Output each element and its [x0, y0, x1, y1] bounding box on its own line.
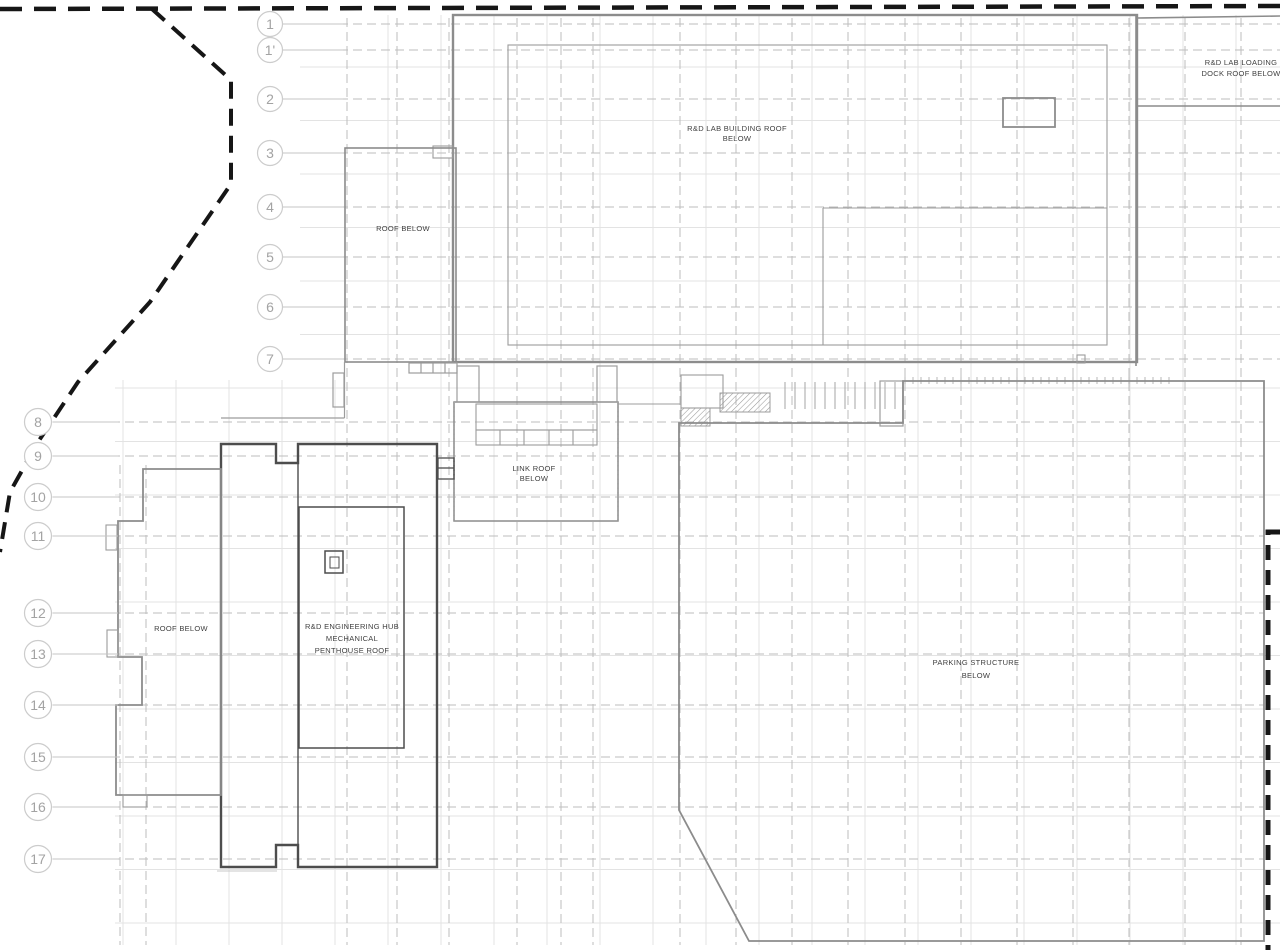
link-side-strip-left [457, 366, 479, 402]
grid-bubble-number: 9 [34, 448, 42, 464]
upper-roof-below-outline [345, 148, 456, 362]
grid-bubble-number: 13 [30, 646, 46, 662]
upper-roof-below-label: ROOF BELOW [376, 224, 430, 233]
grid-bubble-number: 6 [266, 299, 274, 315]
parking-label-line2: BELOW [962, 671, 991, 680]
lab-roof-inner-lines [433, 45, 1107, 363]
property-line-top [0, 6, 1280, 9]
grid-bubble-number: 14 [30, 697, 46, 713]
penthouse-label-line1: R&D ENGINEERING HUB [305, 622, 399, 631]
grid-bubble-number: 17 [30, 851, 46, 867]
ramp-ticks [785, 382, 895, 409]
link-roof-label-line1: LINK ROOF [512, 464, 555, 473]
parking-label-line1: PARKING STRUCTURE [933, 658, 1020, 667]
grid-bubble-number: 8 [34, 414, 42, 430]
upper-roof-below-edges [221, 362, 457, 418]
grid-bubble-number: 4 [266, 199, 274, 215]
loading-dock-label-line2: DOCK ROOF BELOW [1201, 69, 1280, 78]
west-roof-protrusions [106, 525, 147, 807]
grid-bubble-number: 15 [30, 749, 46, 765]
loading-dock-outline [1136, 15, 1280, 366]
lab-roof-label-line1: R&D LAB BUILDING ROOF [687, 124, 787, 133]
stair-hatch-2 [720, 393, 770, 412]
grid-bubble-number: 7 [266, 351, 274, 367]
grid-bubble-number: 16 [30, 799, 46, 815]
property-line-east [1268, 532, 1280, 950]
penthouse-label-line3: PENTHOUSE ROOF [315, 646, 390, 655]
stair-ramp-cluster [681, 375, 1169, 426]
grid-bubble-number: 2 [266, 91, 274, 107]
penthouse-hatch-box [325, 551, 343, 573]
grid-bubble-number: 11 [31, 528, 46, 544]
grid-bubble-number: 1' [265, 42, 275, 58]
penthouse-label-line2: MECHANICAL [326, 634, 378, 643]
grid-layer [55, 15, 1280, 945]
west-roof-below-label: ROOF BELOW [154, 624, 208, 633]
grid-bubble-number: 5 [266, 249, 274, 265]
grid-bubble-number: 1 [266, 16, 274, 32]
grid-bubble-number: 3 [266, 145, 274, 161]
grid-bubble-number: 10 [30, 489, 46, 505]
lab-roof-label-line2: BELOW [723, 134, 752, 143]
link-roof [438, 366, 680, 521]
roof-plan-drawing: R&D LAB BUILDING ROOF BELOW R&D LAB LOAD… [0, 0, 1280, 950]
rooftop-unit [1003, 98, 1055, 127]
grid-bubble-number: 12 [30, 605, 46, 621]
link-roof-label-line2: BELOW [520, 474, 549, 483]
loading-dock-label-line1: R&D LAB LOADING [1205, 58, 1277, 67]
